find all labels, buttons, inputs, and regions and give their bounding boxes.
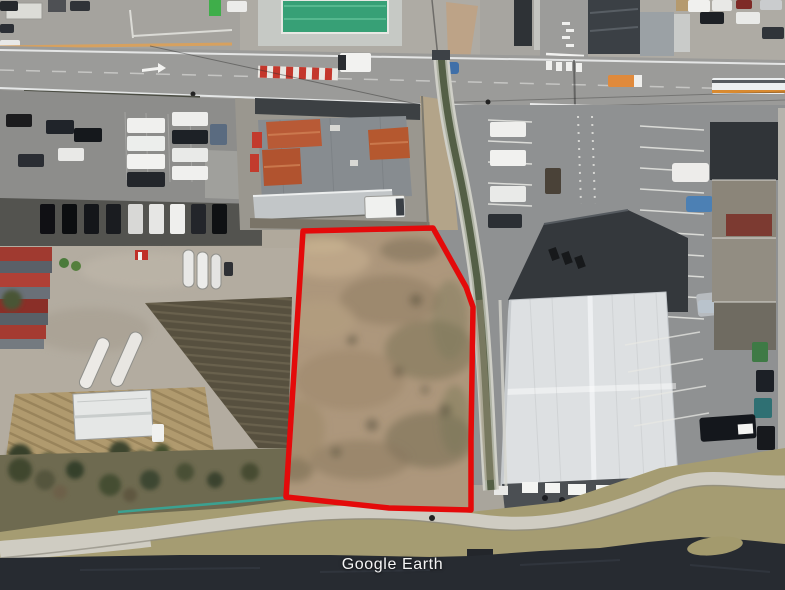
white-greenhouse (73, 390, 153, 440)
green-kiosk (209, 0, 221, 16)
car (152, 424, 164, 442)
gray-building (640, 12, 674, 56)
dark-building (514, 0, 532, 46)
aerial-photo: Google Earth (0, 0, 785, 590)
vacant-lot (275, 231, 475, 508)
farm-plots (0, 226, 302, 472)
side-street (540, 0, 588, 62)
red-awning (250, 154, 259, 172)
white-truck (365, 195, 406, 218)
car (227, 1, 247, 12)
swimming-pool (282, 0, 388, 33)
car (0, 1, 18, 11)
utility-pole (486, 100, 491, 105)
tiled-roof-building-complex (235, 98, 432, 231)
small-building (48, 0, 66, 12)
aerial-photo-canvas (0, 0, 785, 590)
car (0, 24, 14, 33)
left-parking-lot (0, 90, 262, 248)
path-bollard (429, 515, 435, 521)
car (70, 1, 90, 11)
culvert-opening (432, 50, 450, 60)
red-awning (252, 132, 262, 148)
